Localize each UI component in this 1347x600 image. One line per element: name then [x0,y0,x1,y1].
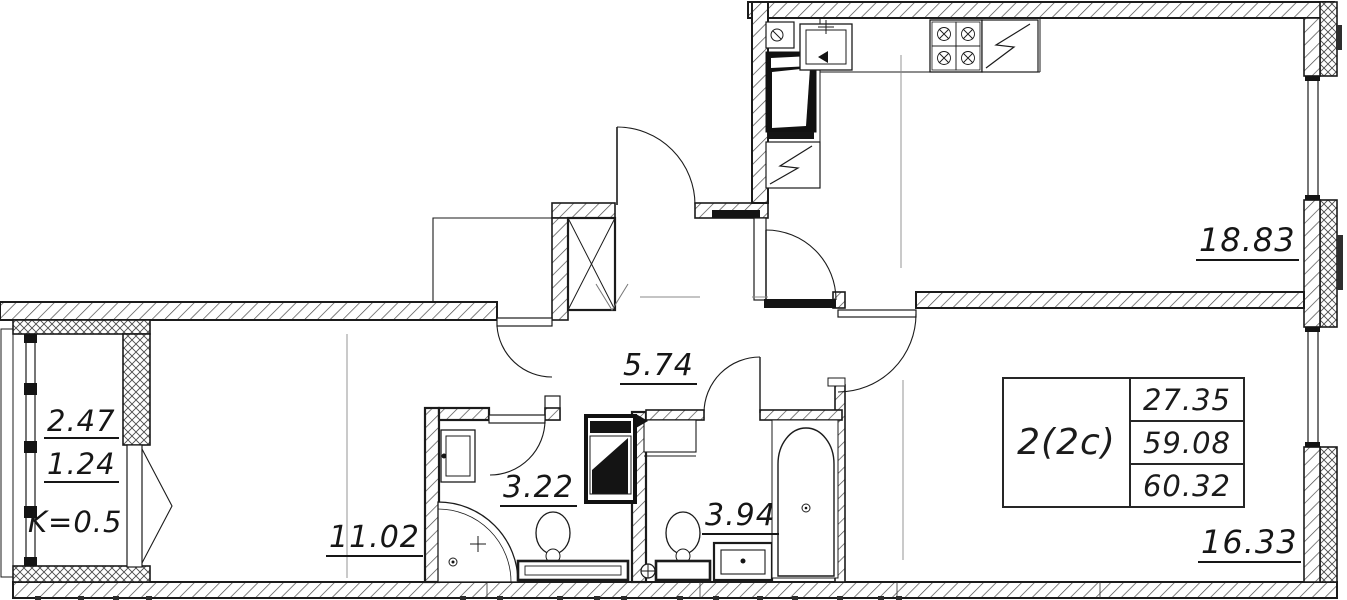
downpipe-mark [1336,25,1342,50]
shelf-icon [636,414,696,456]
area-label-hallway: 5.74 [620,350,697,385]
apartment-summary-table: 2(2c) 27.35 59.08 60.32 [1002,377,1245,508]
window-bedroom-bottom [1305,327,1320,447]
right-wall [1304,2,1343,582]
closet-niche-outline [433,218,552,302]
kitchen-fixtures [766,18,1040,188]
bedroom-door [838,310,916,392]
shower-icon [438,502,518,582]
toilet-icon [641,512,710,580]
washing-machine-icon [586,416,635,502]
kitchen-living-door [764,230,836,308]
entrance-door [617,127,695,205]
floor-plan-drawing [0,0,1347,600]
area-label-kitchen-living: 18.83 [1196,224,1299,261]
toilet-door [704,357,760,413]
sink-icon [441,430,475,482]
area-label-living-room: 11.02 [326,522,423,557]
entry-threshold [712,210,760,218]
vent-shaft-icon [568,218,615,310]
appliance-space-icon [766,142,820,188]
sink-icon [714,543,772,580]
bathroom-door [489,415,545,475]
area-label-bathroom: 3.22 [500,472,577,507]
closet-door [497,318,552,377]
loggia-coefficient-label: K=0.5 [28,507,122,537]
area-value: 59.08 [1131,422,1243,465]
water-meter-icon [766,22,794,48]
window-bedroom-top [1305,76,1320,200]
bathtub-icon [772,420,838,578]
balcony-door [127,445,172,567]
area-label-loggia: 2.47 1.24 [44,406,119,483]
living-area-value: 27.35 [1131,379,1243,422]
total-area-value: 60.32 [1131,465,1243,506]
area-label-toilet: 3.94 [702,500,779,535]
apartment-type-label: 2(2c) [1004,379,1131,506]
downpipe-mark [1337,235,1343,290]
kitchen-sink-icon [800,20,852,70]
toilet-icon [518,512,628,580]
toilet-room-fixtures [636,414,838,580]
floor-plan: 18.83 5.74 11.02 3.22 3.94 16.33 2.47 1.… [0,0,1347,600]
fridge-space-icon [982,20,1038,72]
area-label-bedroom: 16.33 [1198,526,1301,563]
stove-icon [930,20,982,72]
